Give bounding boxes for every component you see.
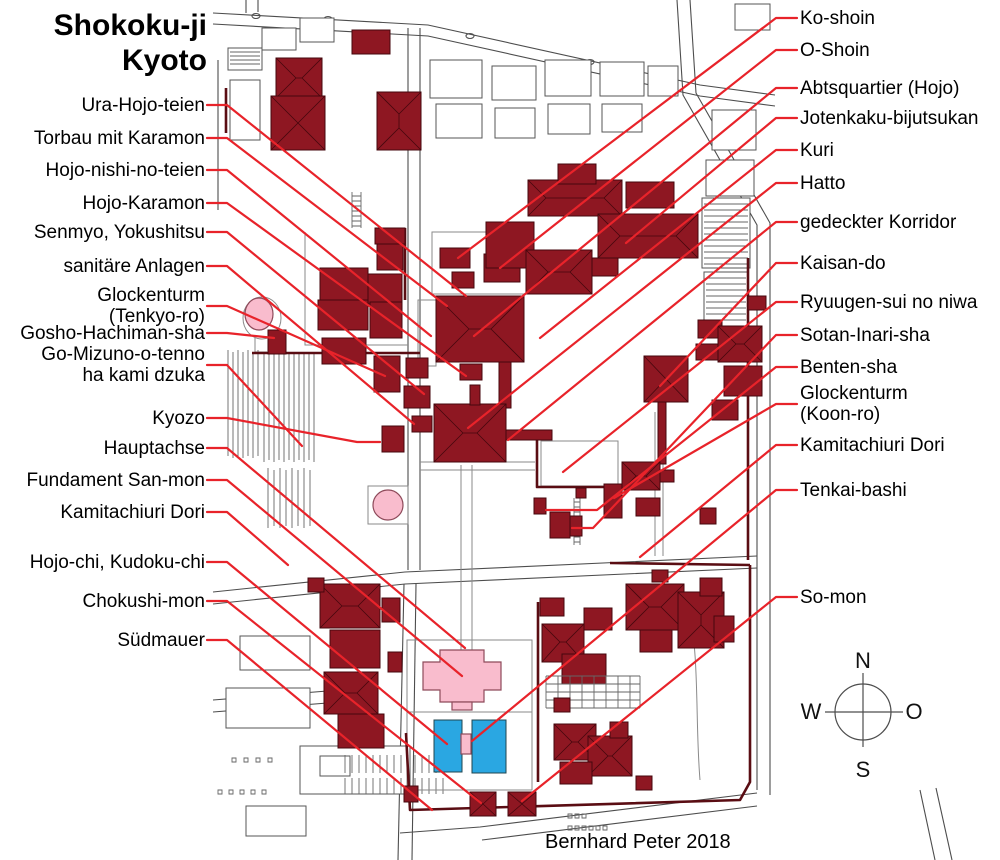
label-glockenturm-tenkyo-ro-line1: Glockenturm [97,285,205,306]
map-page: N S W O Shokoku-ji Kyoto Ura-Hojo-teienT… [0,0,1000,860]
label-kamitachiuri-dori-west: Kamitachiuri Dori [60,502,205,523]
label-jotenkaku-bijutsukan: Jotenkaku-bijutsukan [800,108,979,129]
label-glockenturm-koon-ro-line1: Glockenturm [800,383,908,404]
attribution: Bernhard Peter 2018 [545,831,731,854]
label-kamitachiuri-dori-west-line1: Kamitachiuri Dori [60,502,205,523]
label-torbau-mit-karamon-line1: Torbau mit Karamon [34,128,205,149]
label-senmyo-yokushitsu: Senmyo, Yokushitsu [34,222,205,243]
label-sotan-inari-sha-line1: Sotan-Inari-sha [800,325,930,346]
label-go-mizuno-o-tenno-line1: Go-Mizuno-o-tenno [41,344,205,365]
label-o-shoin-line1: O-Shoin [800,40,870,61]
label-kuri-line1: Kuri [800,140,834,161]
benten-shrine [534,498,546,514]
label-fundament-san-mon-line1: Fundament San-mon [27,470,206,491]
label-jotenkaku-bijutsukan-line1: Jotenkaku-bijutsukan [800,108,979,129]
label-ura-hojo-teien-line1: Ura-Hojo-teien [81,95,205,116]
label-suedmauer-line1: Südmauer [117,630,205,651]
label-so-mon-line1: So-mon [800,587,867,608]
label-hatto-line1: Hatto [800,173,845,194]
label-tenkai-bashi: Tenkai-bashi [800,480,907,501]
label-kyozo-line1: Kyozo [152,408,205,429]
kyozo-building [382,426,404,452]
label-hojo-chi-kudoku-chi: Hojo-chi, Kudoku-chi [30,552,205,573]
label-sanitaere-anlagen-line1: sanitäre Anlagen [63,256,205,277]
label-gedeckter-korridor-line1: gedeckter Korridor [800,212,956,233]
label-hojo-nishi-no-teien: Hojo-nishi-no-teien [46,160,205,181]
label-ko-shoin: Ko-shoin [800,8,875,29]
label-glockenturm-tenkyo-ro: Glockenturm(Tenkyo-ro) [97,285,205,327]
label-fundament-san-mon: Fundament San-mon [27,470,206,491]
label-o-shoin: O-Shoin [800,40,870,61]
label-ura-hojo-teien: Ura-Hojo-teien [81,95,205,116]
label-sotan-inari-sha: Sotan-Inari-sha [800,325,930,346]
map-title-line2: Kyoto [122,44,207,77]
compass-west: W [801,699,822,724]
label-sanitaere-anlagen: sanitäre Anlagen [63,256,205,277]
label-kaisan-do: Kaisan-do [800,253,886,274]
label-benten-sha-line1: Benten-sha [800,357,897,378]
tenkai-bridge [461,734,471,754]
label-suedmauer: Südmauer [117,630,205,651]
label-gosho-hachiman-sha-line1: Gosho-Hachiman-sha [20,323,205,344]
label-senmyo-yokushitsu-line1: Senmyo, Yokushitsu [34,222,205,243]
label-gosho-hachiman-sha: Gosho-Hachiman-sha [20,323,205,344]
label-go-mizuno-o-tenno-line2: ha kami dzuka [82,365,205,386]
gosho-hachiman-shrine [268,330,286,354]
label-abtsquartier-hojo-line1: Abtsquartier (Hojo) [800,78,959,99]
label-hojo-karamon: Hojo-Karamon [83,193,206,214]
label-kamitachiuri-dori-ost-line1: Kamitachiuri Dori [800,435,945,456]
label-hojo-chi-kudoku-chi-line1: Hojo-chi, Kudoku-chi [30,552,205,573]
label-gedeckter-korridor: gedeckter Korridor [800,212,956,233]
leader-line-go-mizuno-o-tenno [207,365,302,446]
compass-south: S [856,757,871,782]
ponds [434,720,506,773]
sotan-inari-shrine [550,512,570,538]
label-hojo-karamon-line1: Hojo-Karamon [83,193,206,214]
leader-line-gosho-hachiman-sha [207,333,274,338]
label-tenkai-bashi-line1: Tenkai-bashi [800,480,907,501]
label-hojo-nishi-no-teien-line1: Hojo-nishi-no-teien [46,160,205,181]
label-kyozo: Kyozo [152,408,205,429]
label-benten-sha: Benten-sha [800,357,897,378]
map-title: Shokoku-ji Kyoto [54,8,207,78]
hojo-karamon-gate [460,364,482,380]
label-glockenturm-koon-ro: Glockenturm(Koon-ro) [800,383,908,425]
label-ryuugen-sui-no-niwa-line1: Ryuugen-sui no niwa [800,292,977,313]
label-go-mizuno-o-tenno: Go-Mizuno-o-tennoha kami dzuka [41,344,205,386]
label-hatto: Hatto [800,173,845,194]
axis-foundation-circle [373,490,403,520]
label-torbau-mit-karamon: Torbau mit Karamon [34,128,205,149]
label-hauptachse: Hauptachse [104,438,205,459]
compass-east: O [905,699,922,724]
label-hauptachse-line1: Hauptachse [104,438,205,459]
compass-rose: N S W O [801,648,923,782]
label-chokushi-mon: Chokushi-mon [83,591,206,612]
label-chokushi-mon-line1: Chokushi-mon [83,591,206,612]
label-glockenturm-koon-ro-line2: (Koon-ro) [800,404,880,425]
label-kamitachiuri-dori-ost: Kamitachiuri Dori [800,435,945,456]
label-kaisan-do-line1: Kaisan-do [800,253,886,274]
hojo-chi-pond [434,720,462,772]
label-abtsquartier-hojo: Abtsquartier (Hojo) [800,78,959,99]
label-kuri: Kuri [800,140,834,161]
label-ko-shoin-line1: Ko-shoin [800,8,875,29]
compass-north: N [855,648,871,673]
label-ryuugen-sui-no-niwa: Ryuugen-sui no niwa [800,292,977,313]
label-so-mon: So-mon [800,587,867,608]
map-title-line1: Shokoku-ji [54,9,207,42]
